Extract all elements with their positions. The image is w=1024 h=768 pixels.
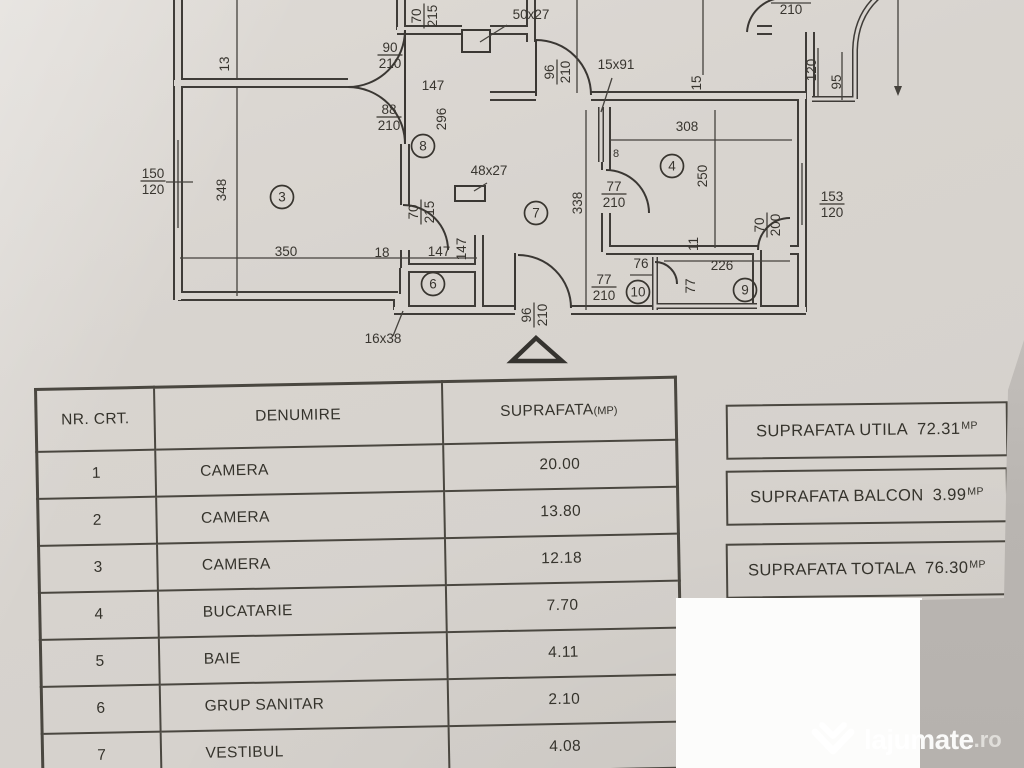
watermark-brand: lajumate <box>864 724 974 756</box>
cell-nr: 5 <box>40 637 159 686</box>
cell-nr: 6 <box>41 684 160 733</box>
dimension-fraction: 153120 <box>820 189 845 220</box>
cell-nr: 4 <box>39 590 158 639</box>
entrance-triangle-marker <box>512 338 562 361</box>
header-denumire: DENUMIRE <box>154 382 443 450</box>
dimension-label: 48x27 <box>471 163 508 178</box>
svg-text:70: 70 <box>409 8 424 23</box>
svg-text:210: 210 <box>378 118 401 133</box>
summary-unit: MP <box>961 419 978 431</box>
lajumate-logo-icon <box>808 718 858 762</box>
summary-value: 3.99 <box>933 486 967 505</box>
cell-nr: 3 <box>39 543 158 592</box>
dimension-fraction: 70215 <box>409 4 440 29</box>
area-table-body: 1CAMERA20.002CAMERA13.803CAMERA12.184BUC… <box>37 439 683 768</box>
cell-suprafata: 2.10 <box>447 674 682 725</box>
summary-value: 76.30 <box>925 559 969 579</box>
dimension-label: 11 <box>686 237 701 251</box>
dimension-label: 147 <box>428 244 451 259</box>
dimension-label: 77 <box>683 278 698 293</box>
svg-text:9: 9 <box>741 283 749 298</box>
cell-denumire: GRUP SANITAR <box>159 679 448 732</box>
svg-text:70: 70 <box>752 217 767 232</box>
area-table: NR. CRT. DENUMIRE SUPRAFATA(MP) 1CAMERA2… <box>34 376 684 768</box>
summary-box-totala: SUPRAFATA TOTALA76.30MP <box>726 540 1009 598</box>
room-number: 10 <box>627 281 650 304</box>
dimension-fraction: 96210 <box>542 60 573 85</box>
dimension-arrowhead <box>894 86 902 96</box>
dimension-label: 226 <box>711 258 734 273</box>
cell-suprafata: 4.08 <box>448 721 683 768</box>
dimension-label: 16x38 <box>365 331 402 346</box>
dimension-fraction: 90210 <box>378 40 403 71</box>
dimension-label: 18 <box>374 245 389 260</box>
svg-text:96: 96 <box>542 64 557 79</box>
dimension-label: 296 <box>434 108 449 131</box>
svg-text:210: 210 <box>379 56 402 71</box>
svg-text:96: 96 <box>519 307 534 322</box>
dimension-label: 308 <box>676 119 699 134</box>
svg-text:3: 3 <box>278 190 286 205</box>
svg-text:150: 150 <box>142 166 165 181</box>
svg-text:8: 8 <box>419 139 427 154</box>
svg-text:200: 200 <box>768 214 783 237</box>
dimension-label: 76 <box>633 256 648 271</box>
cell-denumire: CAMERA <box>156 491 445 544</box>
cell-suprafata: 12.18 <box>444 533 679 584</box>
svg-text:6: 6 <box>429 277 437 292</box>
cell-suprafata: 7.70 <box>445 580 680 631</box>
cell-nr: 1 <box>37 449 156 498</box>
header-nr-crt: NR. CRT. <box>36 387 155 451</box>
niche-50x27 <box>462 30 490 52</box>
dimension-lines <box>166 0 898 336</box>
svg-text:7: 7 <box>532 206 540 221</box>
svg-text:70: 70 <box>406 204 421 219</box>
dimension-label: 8 <box>613 148 619 160</box>
header-unit: (MP) <box>593 405 617 417</box>
room-number: 3 <box>271 186 294 209</box>
dimension-label: 250 <box>695 165 710 188</box>
cell-denumire: CAMERA <box>157 538 446 591</box>
dimension-fraction: 70215 <box>406 200 437 225</box>
dimension-fraction: 77210 <box>592 272 617 303</box>
dimension-label: 210 <box>780 2 803 17</box>
summary-label: SUPRAFATA UTILA <box>756 420 908 441</box>
summary-label: SUPRAFATA TOTALA <box>748 559 916 580</box>
dimension-fraction: 88210 <box>377 102 402 133</box>
cell-denumire: BUCATARIE <box>157 585 446 638</box>
svg-text:120: 120 <box>821 205 844 220</box>
dimension-fraction: 70200 <box>752 213 783 238</box>
dimension-label: 15x91 <box>598 57 635 72</box>
cell-suprafata: 20.00 <box>443 439 678 490</box>
room-number: 4 <box>661 155 684 178</box>
svg-text:153: 153 <box>821 189 844 204</box>
svg-text:77: 77 <box>606 179 621 194</box>
svg-text:210: 210 <box>593 288 616 303</box>
summary-value: 72.31 <box>917 420 961 440</box>
summary-label: SUPRAFATA BALCON <box>750 486 924 507</box>
dimension-label: 15 <box>689 75 704 90</box>
watermark-tld: .ro <box>974 727 1002 753</box>
cell-suprafata: 4.11 <box>446 627 681 678</box>
svg-text:210: 210 <box>603 195 626 210</box>
cell-nr: 7 <box>42 731 161 768</box>
summary-unit: MP <box>967 485 984 497</box>
svg-text:88: 88 <box>381 102 396 117</box>
cell-suprafata: 13.80 <box>444 486 679 537</box>
room-number: 8 <box>412 135 435 158</box>
dimension-label: 350 <box>275 244 298 259</box>
room-number: 6 <box>422 273 445 296</box>
svg-text:120: 120 <box>142 182 165 197</box>
svg-text:215: 215 <box>425 5 440 28</box>
dimension-fraction: 96210 <box>519 303 550 328</box>
cell-nr: 2 <box>38 496 157 545</box>
svg-text:77: 77 <box>596 272 611 287</box>
dimension-label: 348 <box>214 179 229 202</box>
niche-48x27 <box>455 186 485 201</box>
watermark: lajumate .ro <box>808 718 1002 762</box>
summary-box-utila: SUPRAFATA UTILA72.31MP <box>726 401 1009 459</box>
svg-text:4: 4 <box>668 159 676 174</box>
summary-unit: MP <box>969 558 986 570</box>
svg-text:210: 210 <box>535 304 550 327</box>
dimension-label: 50x27 <box>513 7 550 22</box>
dimension-label: 95 <box>829 74 844 89</box>
room-number: 7 <box>525 202 548 225</box>
svg-text:10: 10 <box>630 285 645 300</box>
cell-denumire: VESTIBUL <box>160 726 449 768</box>
svg-text:210: 210 <box>558 61 573 84</box>
summary-box-balcon: SUPRAFATA BALCON3.99MP <box>726 467 1009 525</box>
dimension-label: 13 <box>217 56 232 71</box>
dimension-fraction: 77210 <box>602 179 627 210</box>
dimension-label: 338 <box>570 192 585 215</box>
svg-text:215: 215 <box>422 201 437 224</box>
svg-text:90: 90 <box>382 40 397 55</box>
cell-denumire: BAIE <box>158 632 447 685</box>
scanned-floor-plan-photo: 50x2714715x913082103501814748x272267616x… <box>0 0 1024 768</box>
cell-denumire: CAMERA <box>155 444 444 497</box>
dimension-label: 120 <box>804 59 819 82</box>
dimension-fraction: 150120 <box>141 166 166 197</box>
header-suprafata: SUPRAFATA(MP) <box>441 377 676 443</box>
dimension-label: 147 <box>454 238 469 261</box>
dimension-label: 147 <box>422 78 445 93</box>
